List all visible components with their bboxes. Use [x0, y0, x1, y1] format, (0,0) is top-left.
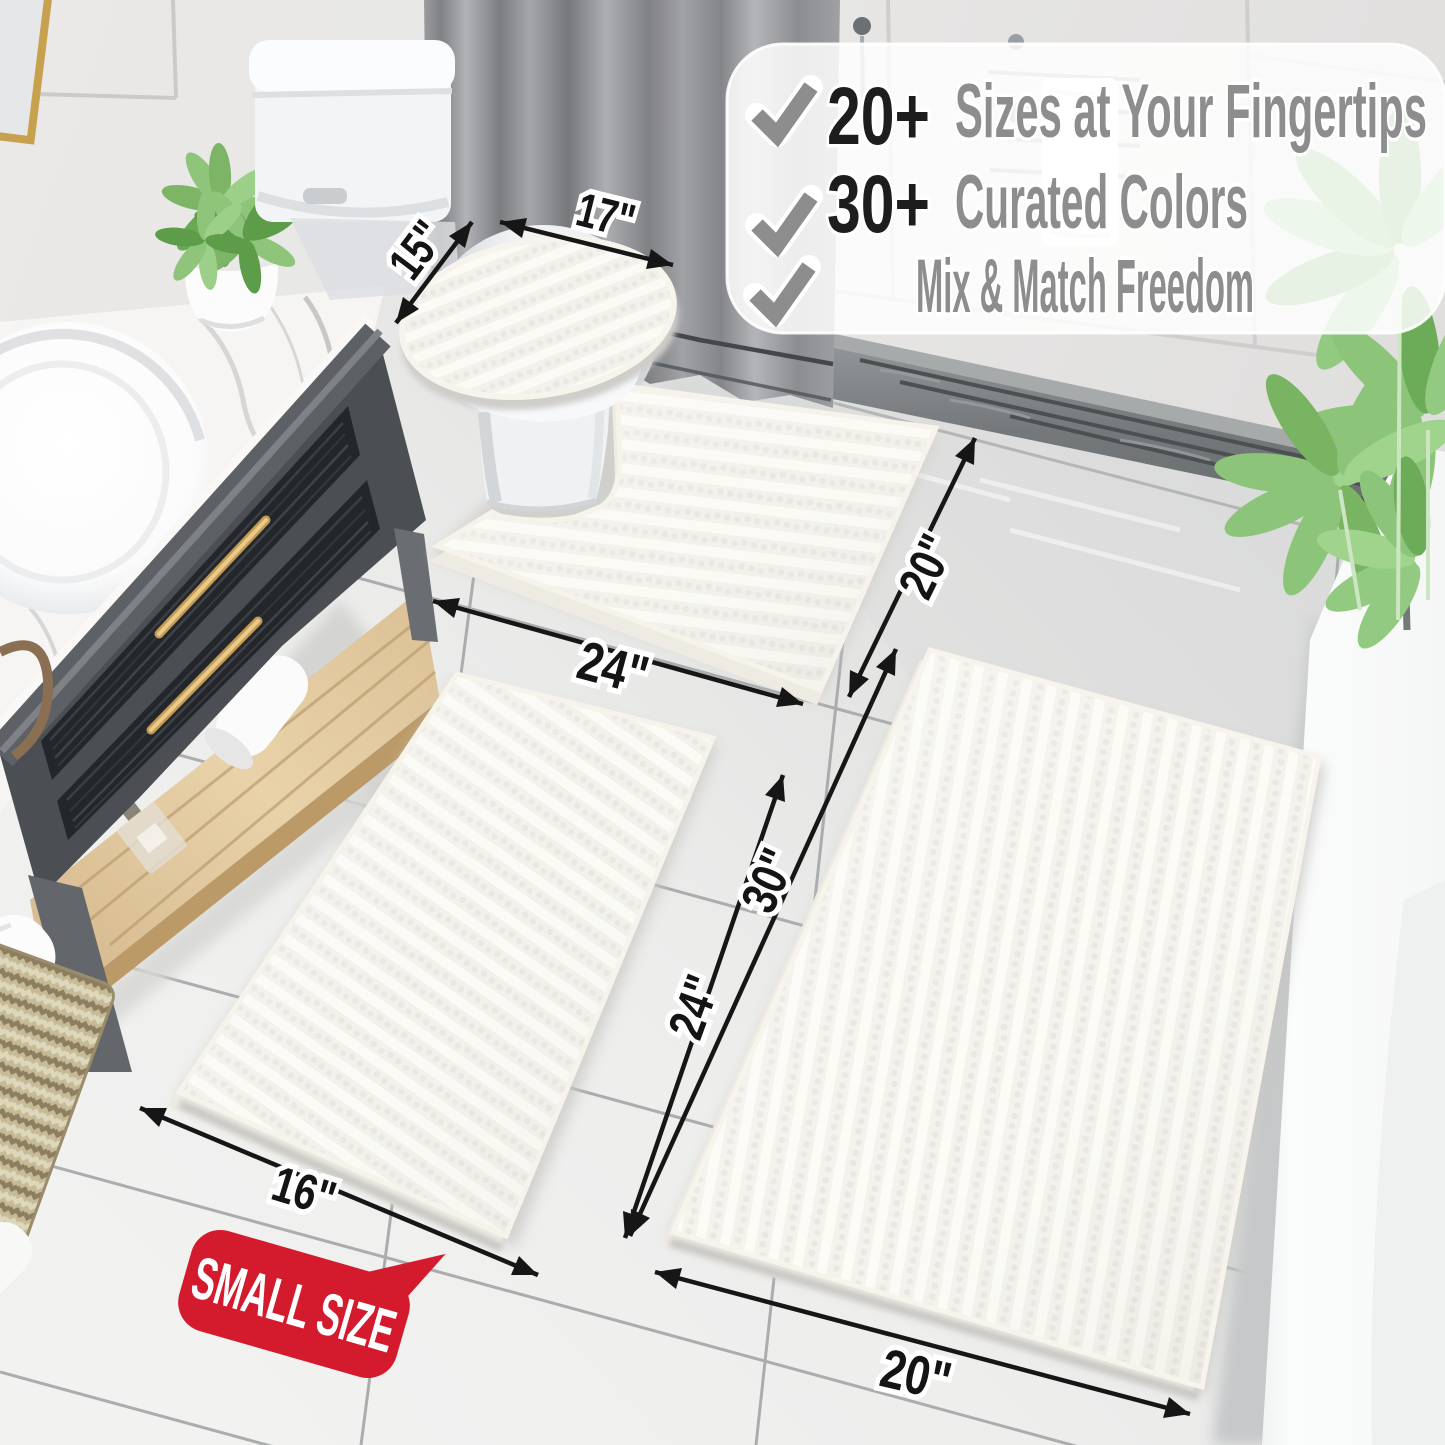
svg-text:Mix & Match Freedom: Mix & Match Freedom [916, 244, 1254, 329]
svg-text:30+: 30+ [827, 159, 930, 250]
svg-text:20+: 20+ [827, 71, 930, 162]
svg-text:Sizes at Your Fingertips: Sizes at Your Fingertips [955, 69, 1427, 154]
svg-text:Curated Colors: Curated Colors [955, 160, 1248, 245]
